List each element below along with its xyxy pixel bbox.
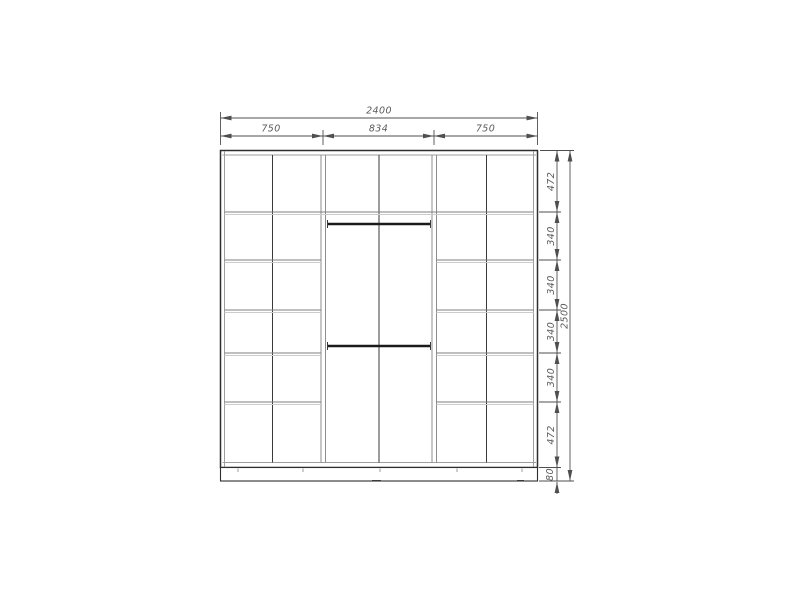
- dim-row-height-6: 472: [546, 425, 557, 444]
- dim-total-height: 2500: [560, 303, 571, 329]
- wardrobe-technical-drawing: 2400 750 834 750 472 340 340 340 340 472…: [0, 0, 800, 600]
- right-dimension-lines: 472 340 340 340 340 472 80 2500: [539, 151, 574, 495]
- dim-row-height-5: 340: [546, 368, 557, 387]
- top-dimension-lines: 2400 750 834 750: [221, 106, 538, 146]
- dim-row-height-1: 472: [546, 172, 557, 191]
- dim-total-width: 2400: [366, 106, 392, 117]
- plinth: [221, 468, 538, 482]
- dim-row-height-3: 340: [546, 275, 557, 294]
- right-section-shelves: [437, 260, 534, 405]
- dim-section-width-3: 750: [476, 124, 495, 135]
- dim-section-width-1: 750: [261, 124, 280, 135]
- dim-row-height-2: 340: [546, 226, 557, 245]
- dim-row-height-4: 340: [546, 322, 557, 341]
- column-partitions: [273, 155, 487, 463]
- dim-section-width-2: 834: [369, 124, 388, 135]
- technical-drawing-canvas: 2400 750 834 750 472 340 340 340 340 472…: [0, 0, 800, 600]
- dim-plinth-height: 80: [545, 468, 556, 481]
